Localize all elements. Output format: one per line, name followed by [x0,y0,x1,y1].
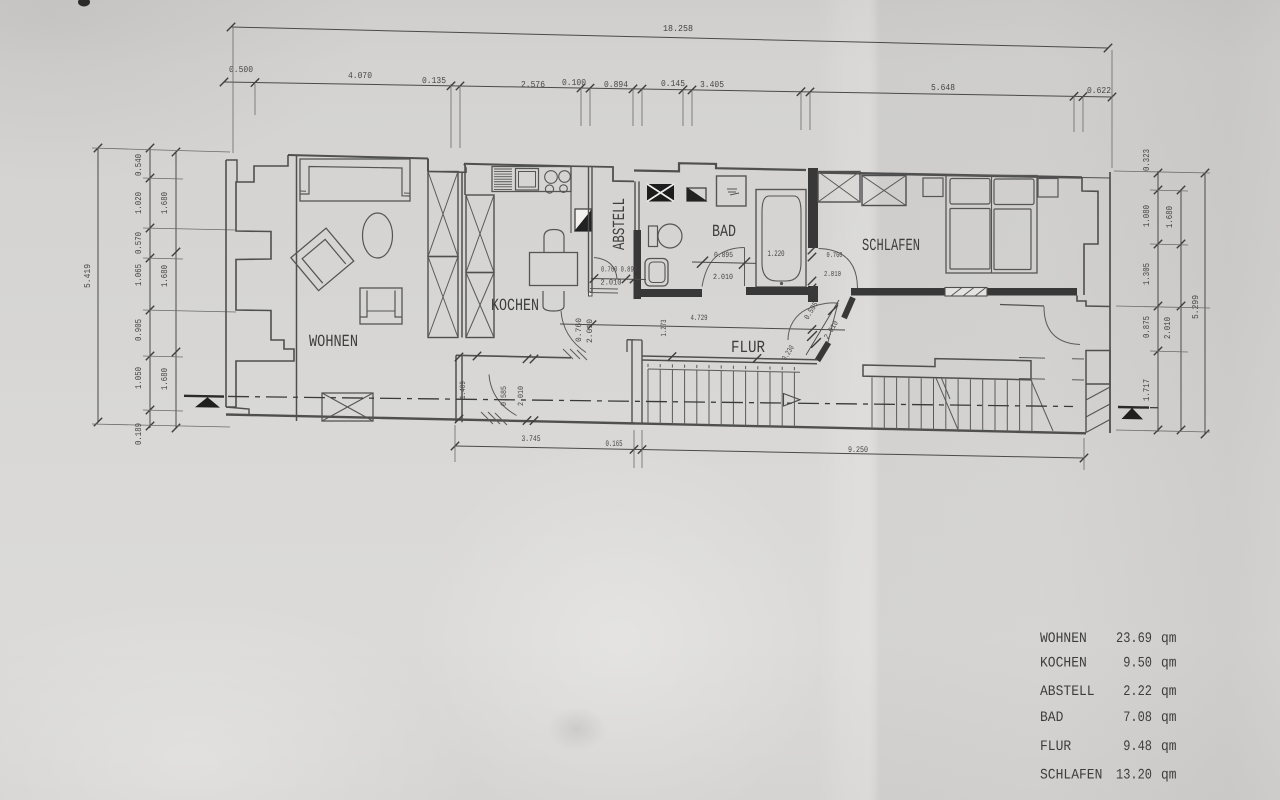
svg-text:WOHNEN: WOHNEN [309,333,358,352]
svg-text:2.22: 2.22 [1123,684,1152,700]
svg-text:0.145: 0.145 [661,79,685,89]
svg-text:3.405: 3.405 [700,80,724,90]
svg-text:FLUR: FLUR [1040,739,1071,755]
svg-text:1.080: 1.080 [1142,205,1152,227]
svg-text:5.419: 5.419 [83,264,93,288]
svg-text:13.20: 13.20 [1116,768,1152,784]
svg-text:BAD: BAD [712,223,736,242]
svg-text:1.020: 1.020 [134,192,144,214]
svg-text:1.680: 1.680 [1165,206,1175,228]
svg-text:SCHLAFEN: SCHLAFEN [1040,768,1102,784]
svg-text:0.585: 0.585 [500,386,509,406]
svg-text:1.680: 1.680 [160,192,170,214]
svg-text:2.010: 2.010 [824,270,841,279]
svg-text:0.323: 0.323 [1142,149,1152,171]
svg-text:0.760: 0.760 [575,318,584,342]
svg-text:WOHNEN: WOHNEN [1040,631,1087,647]
svg-text:9.48: 9.48 [1123,739,1152,755]
svg-text:qm: qm [1161,768,1177,784]
svg-text:4.729: 4.729 [691,314,708,323]
svg-text:0.905: 0.905 [134,319,144,341]
svg-text:0.760 0.894: 0.760 0.894 [601,266,637,275]
svg-text:qm: qm [1161,656,1177,672]
svg-text:0.189: 0.189 [134,423,144,445]
svg-text:2.010: 2.010 [517,386,526,406]
svg-text:1.220: 1.220 [768,249,785,259]
svg-text:1.717: 1.717 [1142,379,1152,401]
svg-text:0.895: 0.895 [714,251,733,260]
svg-text:9.250: 9.250 [848,445,868,455]
svg-text:0.570: 0.570 [134,232,144,254]
svg-text:0.595: 0.595 [803,301,821,322]
svg-text:1.680: 1.680 [160,368,170,390]
svg-text:KOCHEN: KOCHEN [491,297,539,316]
svg-text:0.165: 0.165 [606,439,623,449]
svg-text:ABSTELL: ABSTELL [1040,684,1095,700]
svg-text:ABSTELL: ABSTELL [611,198,630,250]
svg-text:4.070: 4.070 [348,71,372,81]
svg-text:0.760: 0.760 [827,251,843,260]
svg-text:qm: qm [1161,739,1177,755]
svg-text:0.135: 0.135 [422,76,446,86]
svg-text:1.680: 1.680 [160,265,170,287]
svg-text:1.305: 1.305 [1142,263,1152,285]
svg-text:9.50: 9.50 [1123,656,1152,672]
svg-text:1.409: 1.409 [459,381,468,399]
svg-text:2.576: 2.576 [521,80,545,90]
svg-text:23.69: 23.69 [1116,631,1152,647]
svg-text:2.010: 2.010 [1163,317,1173,339]
svg-text:KOCHEN: KOCHEN [1040,656,1087,672]
svg-text:qm: qm [1161,710,1177,726]
svg-text:2.010: 2.010 [601,279,622,288]
svg-text:7.08: 7.08 [1123,710,1152,726]
svg-text:0.894: 0.894 [604,80,628,90]
svg-text:3.745: 3.745 [522,434,541,444]
svg-text:qm: qm [1161,684,1177,700]
svg-text:qm: qm [1161,631,1177,647]
svg-text:1.065: 1.065 [134,264,144,286]
svg-text:0.540: 0.540 [134,154,144,176]
svg-text:18.258: 18.258 [663,24,693,34]
svg-text:5.648: 5.648 [931,83,955,93]
svg-text:0.100: 0.100 [562,78,586,88]
svg-text:1.273: 1.273 [660,319,669,336]
svg-text:SCHLAFEN: SCHLAFEN [862,237,920,256]
svg-text:1.050: 1.050 [134,367,144,389]
svg-text:BAD: BAD [1040,710,1063,726]
svg-text:0.875: 0.875 [1142,316,1152,338]
svg-text:5.299: 5.299 [1191,295,1201,319]
svg-text:2.010: 2.010 [713,273,733,282]
svg-text:0.622: 0.622 [1087,86,1111,96]
